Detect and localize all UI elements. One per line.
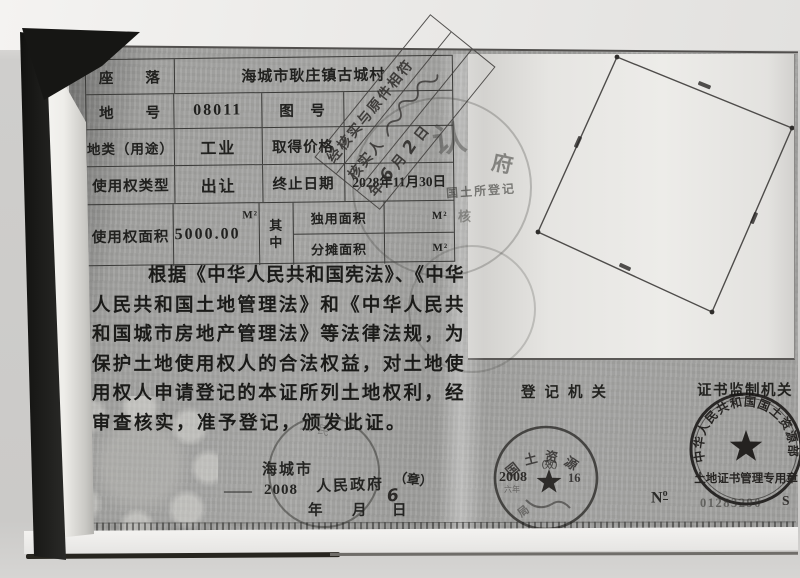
registration-seal-scribble <box>526 500 570 508</box>
sub-area-cells: 独用面积 M² 分摊面积 M² <box>293 201 454 265</box>
legal-line: 根据《中华人民共和国宪法》、《中华 <box>92 262 464 292</box>
legal-line: 审查核实，准予登记，颁发此证。 <box>92 410 464 440</box>
table-row-area: 使用权面积 5000.00 M² 其中 独用面积 M² 分摊面积 M² <box>88 201 455 267</box>
legal-line: 用权人申请登记的本证所列土地权利，经 <box>92 380 464 410</box>
underlying-page-strip <box>24 527 798 554</box>
scan-bottom-edge-dark <box>26 552 340 559</box>
registration-seal-day: 16 <box>568 471 581 485</box>
no-n: N <box>651 489 663 506</box>
registration-organ-label: 登记机关 <box>521 381 615 402</box>
issuing-city: 海城市 <box>262 458 313 479</box>
legal-line: 人民共和国土地管理法》和《中华人民共 <box>92 292 464 322</box>
blank-line-dash: —— <box>224 484 252 500</box>
exclusive-unit: M² <box>384 201 453 232</box>
edge-dimension-marks <box>574 81 758 271</box>
land-class-value: 工业 <box>175 128 263 165</box>
legal-line: 和国城市房地产管理法》等法律法规，为 <box>92 321 464 351</box>
scan-bottom-edge-thin <box>330 552 798 556</box>
area-value-cell: 5000.00 M² <box>174 203 260 266</box>
month-label: 月 <box>352 499 367 520</box>
land-no-label: 地 号 <box>86 94 175 129</box>
land-no-value: 08011 <box>174 93 262 128</box>
registration-organ-seal: 国土资源 2008 六年 （效） 16 局 <box>492 424 602 534</box>
land-class-label: 地类（用途） <box>87 129 176 166</box>
legal-line: 保护土地使用权人的合法权益，对土地使 <box>92 351 464 381</box>
area-value: 5000.00 <box>174 225 240 244</box>
registration-seal-year: 2008 <box>499 470 527 485</box>
area-unit: M² <box>242 203 258 221</box>
registration-seal-subyear: 六年 <box>504 484 520 494</box>
day-label: 日 <box>392 499 407 520</box>
scanned-certificate-page: 认 府 国土所登记 核 座 落 海城市耿庄镇古城村 地 号 08011 图 号 … <box>0 0 800 578</box>
legal-statement: 根据《中华人民共和国宪法》、《中华 人民共和国土地管理法》和《中华人民共 和国城… <box>92 262 464 439</box>
tenure-label: 使用权类型 <box>87 166 176 204</box>
certificate-serial-number: 01283290 <box>700 496 762 511</box>
apportioned-area-row: 分摊面积 M² <box>294 232 454 264</box>
no-o: o <box>663 488 668 500</box>
map-no-label: 图 号 <box>262 92 345 127</box>
among-label: 其中 <box>259 203 294 265</box>
certificate-serial-suffix: S <box>782 493 790 509</box>
registration-seal-star <box>537 469 562 493</box>
certificate-no-prefix: No <box>651 488 668 507</box>
issue-year: 2008 <box>264 482 298 499</box>
faint-seal-character-2: 核 <box>458 206 471 225</box>
registration-seal-mark: （效） <box>536 459 563 470</box>
apportioned-label: 分摊面积 <box>294 233 385 265</box>
area-label: 使用权面积 <box>88 204 175 267</box>
supervision-organ-seal: 中华人民共和国国土资源部 土地证书管理专用章 <box>686 390 800 510</box>
tenure-value: 出让 <box>175 165 263 203</box>
supervision-seal-star <box>730 430 762 461</box>
year-label: 年 <box>308 499 323 520</box>
government-label: 人民政府 <box>316 473 385 496</box>
supervision-seal-bottom-text: 土地证书管理专用章 <box>694 471 798 485</box>
exclusive-label: 独用面积 <box>293 202 384 234</box>
registration-seal-bottom-char: 局 <box>514 503 531 521</box>
apportioned-unit: M² <box>385 232 454 263</box>
